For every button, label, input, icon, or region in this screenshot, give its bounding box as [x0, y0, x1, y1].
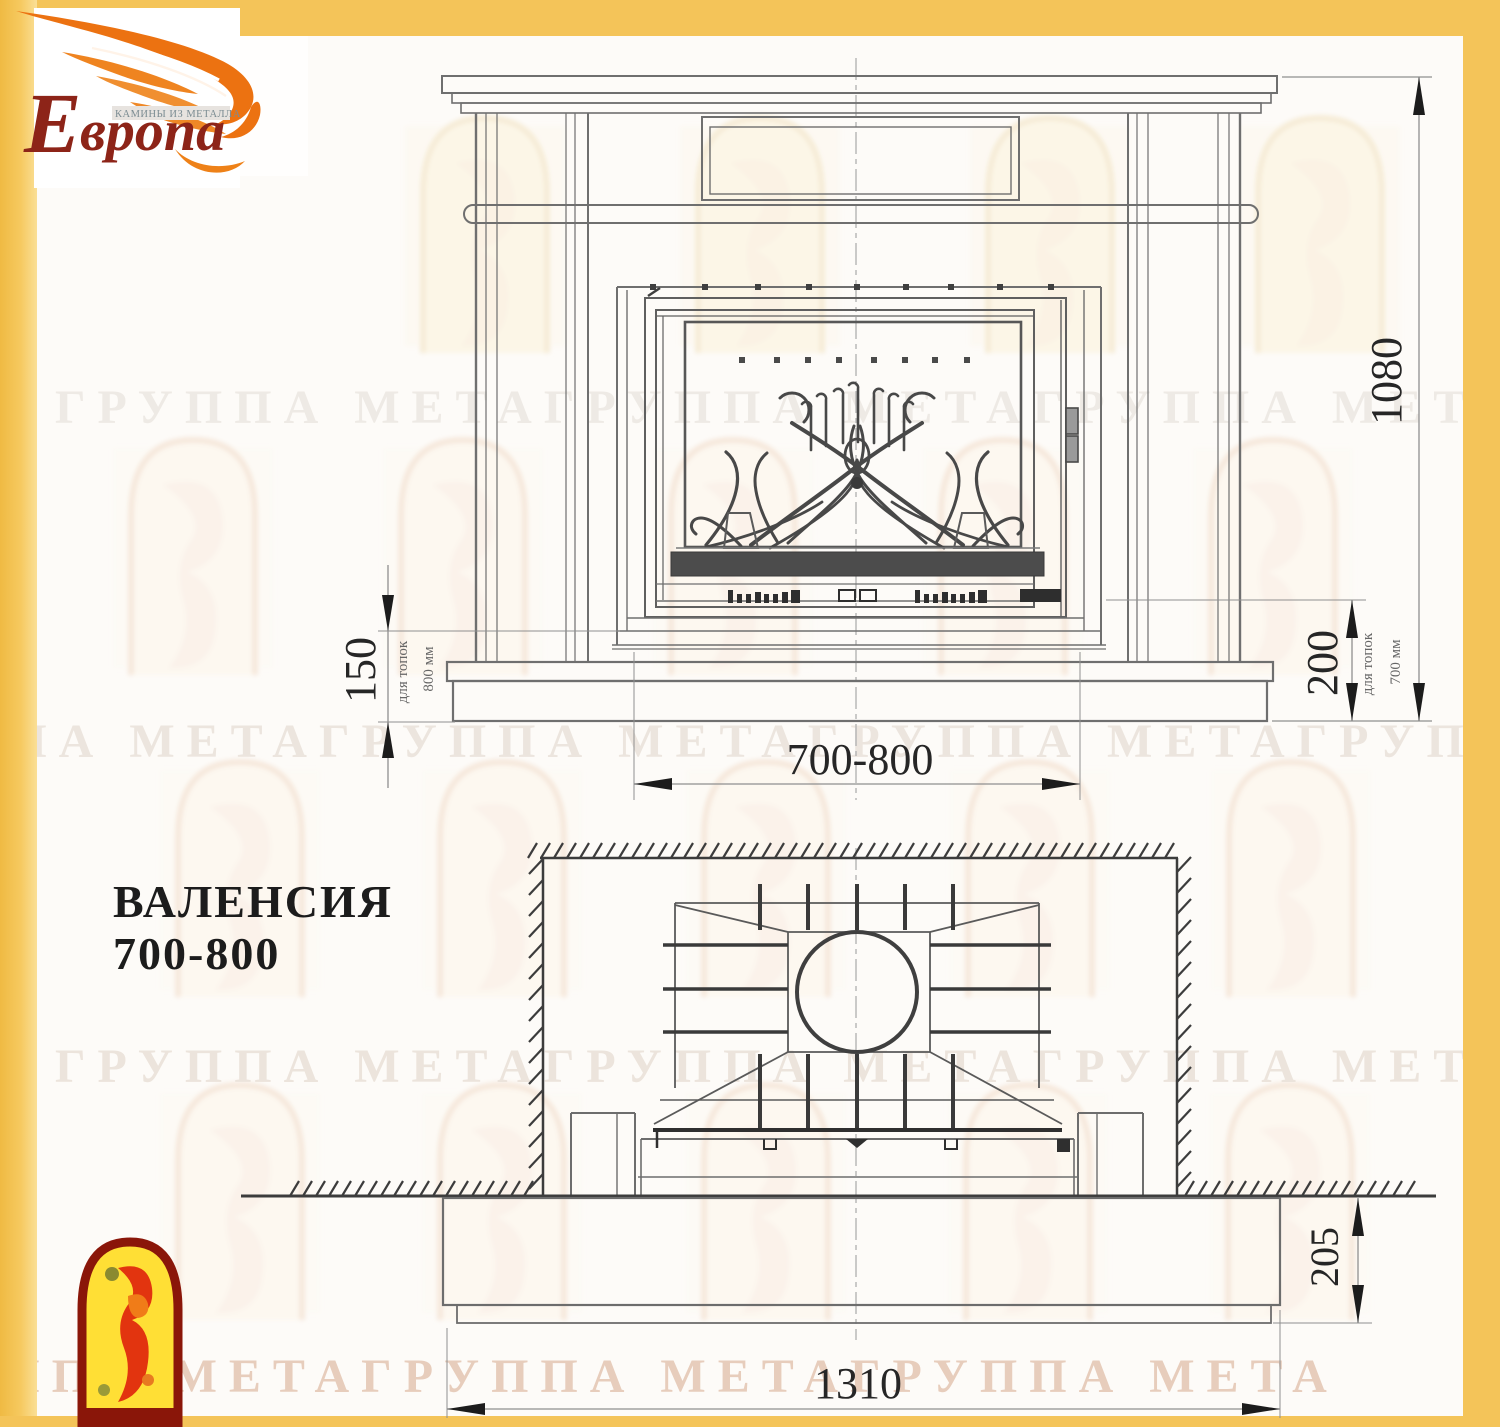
svg-text:ГРУППА МЕТАГРУППА МЕТАГРУППА М: ГРУППА МЕТАГРУППА МЕТАГРУППА МЕТАГ: [55, 1040, 1500, 1093]
svg-text:1310: 1310: [814, 1359, 902, 1408]
svg-text:205: 205: [1302, 1227, 1347, 1287]
svg-text:КАМИНЫ ИЗ МЕТАЛЛА: КАМИНЫ ИЗ МЕТАЛЛА: [115, 109, 241, 120]
svg-text:700 мм: 700 мм: [1388, 639, 1404, 685]
svg-text:1080: 1080: [1362, 337, 1411, 425]
svg-text:Е: Е: [23, 75, 81, 171]
svg-text:УППА МЕТАГРУППА МЕТАГРУППА МЕТ: УППА МЕТАГРУППА МЕТАГРУППА МЕТА: [0, 1350, 1339, 1403]
svg-text:для топок: для топок: [1360, 632, 1376, 695]
svg-text:ГРУППА МЕТАГРУППА МЕТАГРУППА М: ГРУППА МЕТАГРУППА МЕТАГРУППА МЕТАГ: [55, 381, 1500, 434]
svg-text:700-800: 700-800: [113, 928, 280, 979]
svg-text:800 мм: 800 мм: [421, 646, 437, 692]
svg-text:ППА МЕТАГРУППА МЕТАГРУППА МЕТА: ППА МЕТАГРУППА МЕТАГРУППА МЕТАГРУП: [0, 715, 1476, 768]
svg-text:200: 200: [1298, 630, 1347, 696]
svg-text:для топок: для топок: [395, 640, 411, 703]
svg-text:ВАЛЕНСИЯ: ВАЛЕНСИЯ: [113, 876, 393, 927]
svg-text:700-800: 700-800: [787, 735, 934, 784]
svg-text:150: 150: [336, 637, 385, 703]
